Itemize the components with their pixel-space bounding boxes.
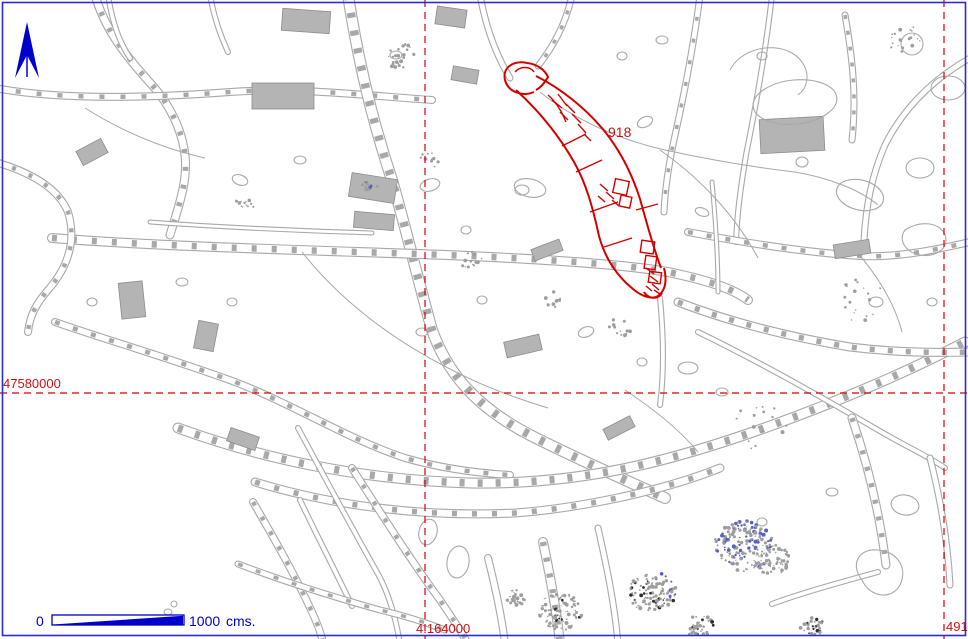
map-svg: 47580000 4.164000 491 918 [0, 0, 968, 639]
map-canvas[interactable]: 47580000 4.164000 491 918 [0, 0, 968, 639]
cave-linework [0, 0, 968, 639]
grid-label-easting-center: 4.164000 [416, 621, 470, 636]
north-arrow-icon [15, 22, 39, 78]
scale-unit-label: cms. [226, 613, 256, 629]
highlight-id-label: 918 [608, 124, 632, 140]
cave-linework-detail [76, 6, 965, 636]
scale-zero-label: 0 [36, 613, 44, 629]
scale-bar: 0 1000 cms. [36, 613, 256, 629]
grid-label-northing: 47580000 [3, 376, 61, 391]
grid-label-easting-right: 491 [946, 619, 968, 634]
scale-distance-label: 1000 [189, 613, 220, 629]
